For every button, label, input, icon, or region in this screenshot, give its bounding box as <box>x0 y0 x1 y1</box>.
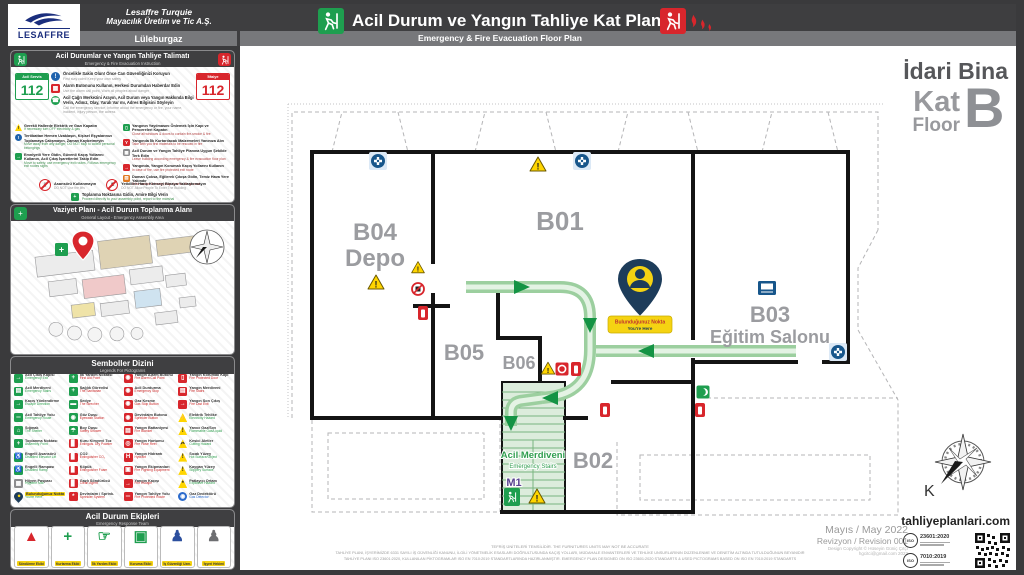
stairs-code: M1 <box>506 477 521 489</box>
warning-icon: ! <box>368 275 384 290</box>
lock-warning-icon: ! <box>412 262 425 274</box>
legend-icon: ▬ <box>69 400 78 409</box>
team-member-tile: ▲ Söndürme Ekibi <box>14 526 49 568</box>
stairs-exit-runner-icon <box>504 488 520 506</box>
note-text: Yangında İlk Kurtarılacak Malzemeleri Ya… <box>132 139 224 147</box>
legend-item: ▤ Acil Merdiveni Emergency Stairs <box>14 386 67 399</box>
legend-text: Sıcak Yüzey Hot Surface/Object <box>189 452 217 459</box>
team-member-icon: ♟ <box>207 528 220 546</box>
svg-text:+: + <box>59 245 64 255</box>
legend-text: Yangın Tahliye Yolu Fire Protected Route <box>135 492 170 499</box>
plan-subtitle: Emergency & Fire Evacuation Floor Plan <box>300 33 700 43</box>
instruction-note: → Yangında, Yangın Korumalı Kaçış Yollar… <box>123 164 230 172</box>
note-icon: ▦ <box>123 149 130 156</box>
legend-text: Yanıcı Gaz/Sıvı Flammable Gas/Liquid <box>189 426 222 433</box>
team-member-label: İşyeri Hekimi <box>202 561 225 566</box>
legend-icon: * <box>178 479 187 488</box>
svg-text:!: ! <box>537 162 540 172</box>
site-map: + <box>11 221 232 349</box>
room-label-b02: B02 <box>573 448 613 473</box>
team-member-tile: ☞ İlk Yardım Ekibi <box>87 526 122 568</box>
legend-icon: → <box>178 400 187 409</box>
iso-number-block: 23601:2020 <box>920 535 950 546</box>
legend-text: Yangın Kaçışı Fire Escape <box>135 479 160 486</box>
legend-icon: ▊ <box>69 439 78 448</box>
exit-runner-icon <box>318 8 344 34</box>
legend-item: ▯ Yangın Korumalı Kapı Fire Protected Do… <box>178 373 231 386</box>
legend-item: ◉ Acil Durdurma Emergency Stop <box>124 386 177 399</box>
legend-title: Semboller Dizini <box>11 359 234 368</box>
svg-text:!: ! <box>547 366 550 375</box>
legend-item: ! Yanıcı Gaz/Sıvı Flammable Gas/Liquid <box>178 426 231 439</box>
legend-text: Yangın Battaniyesi Fire Blanket <box>135 426 169 433</box>
fire-hose-icon <box>556 363 569 376</box>
team-member-tile: ♟ İşyeri Hekimi <box>197 526 232 568</box>
legend-text: Kaçış Yönlendirme Escape Direction <box>25 399 59 406</box>
compass-rose: K <box>924 434 991 500</box>
legend-item: ▤ Yangın Merdiveni Fire Stairs <box>178 386 231 399</box>
legend-item: → Kaçış Yönlendirme Escape Direction <box>14 399 67 412</box>
legend-text: Yangın Korumalı Kapı Fire Protected Door <box>189 373 228 380</box>
plan-email: hgcitci@gmail.com 2022 <box>700 551 908 556</box>
prohibitions: ▯ Asansörü KullanmayınDO NOT Use the lif… <box>15 179 230 191</box>
legend-text: Sağlık Görevlisi The Sanitarian <box>80 386 109 393</box>
legend-text: Yangın Alarm Butonu Fire Alarm Call Poin… <box>135 373 173 380</box>
iso-number: 23601:2020 <box>920 535 950 541</box>
stairs-label-en: Emergency Stairs <box>509 464 556 470</box>
iso-logo: ISO <box>903 533 918 548</box>
team-member-label: Kurtarma Ekibi <box>55 561 81 566</box>
note-icon: ! <box>15 124 22 131</box>
prohibited-icon: ♟ <box>106 179 118 191</box>
prohibited-icon: ▯ <box>39 179 51 191</box>
flame-icon <box>689 8 712 34</box>
fan-icon <box>829 343 847 361</box>
legend-text: Toplanma Noktası Assembly Point <box>25 439 57 446</box>
legend-icon: ▯ <box>178 374 187 383</box>
room-label-b05: B05 <box>444 340 484 365</box>
legend-text: Hijyen Paspası Hygiene Mat <box>25 479 52 486</box>
site-layout-title: Vaziyet Planı - Acil Durum Toplanma Alan… <box>11 207 234 215</box>
instruction-note: ! Tertibattan Hemen Uzaklaşın, Kişisel E… <box>15 134 119 150</box>
assembly-text: Toplanma Noktasına Gidin, Amire Bilgi Ve… <box>82 192 174 201</box>
step-text: Öncelikle Sakin Olun! Önce Can Güvenliği… <box>63 72 170 81</box>
legend-item: + Toplanma Noktası Assembly Point <box>14 439 67 452</box>
legend-text: Kuru Kimyevi Toz Extinguis. Dry Powder <box>80 439 112 446</box>
legend-icon: ◉ <box>69 413 78 422</box>
emergency-number-fire: İtfaiye 112 <box>196 73 230 100</box>
legend-icon: ◉ <box>124 387 133 396</box>
legend-text: CO2 Extinguisher CO₂ <box>80 452 105 459</box>
stairs-label-tr: Acil Merdiveni <box>501 450 565 461</box>
legend-text: Yangın Ekipmanları Fire Fighting Equipme… <box>135 465 170 472</box>
legend-icon: ▣ <box>124 466 133 475</box>
team-member-label: İlk Yardım Ekibi <box>91 561 118 566</box>
legend-item: ▊ Köpük Extinguisher Foam <box>69 465 122 478</box>
assembly-point-icon: + <box>14 207 27 220</box>
note-text: Emniyetli Yere Gidin, Güvenli Kaçış Yoll… <box>24 153 119 169</box>
legend-icon: ◉ <box>124 413 133 422</box>
legend-text: Acil Durdurma Emergency Stop <box>135 386 161 393</box>
step-icon: ☎ <box>51 96 60 105</box>
legend-text: Engelli Rampası Disabled Ramp <box>25 465 54 472</box>
legend-icon: ! <box>178 466 187 475</box>
legend-text: Yangın Son Çıkış Fire Last Exit <box>189 399 220 406</box>
legend-item: ═ Yangın Tahliye Yolu Fire Protected Rou… <box>124 492 177 505</box>
room-label-b04-name: Depo <box>345 245 405 272</box>
no-entry-icon <box>412 283 424 295</box>
team-member-tile: ▣ Koruma Ekibi <box>124 526 159 568</box>
plan-revision: Revizyon / Revision 001 <box>700 536 908 546</box>
you-are-here-en: You're Here <box>628 326 653 331</box>
legend-text: Bulunduğunuz Nokta You're Here <box>25 492 65 499</box>
legend-item: ◉ Devirdaim Butonu Sprinkler Button <box>124 413 177 426</box>
company-name: Lesaffre Turquie Mayacılık Üretim ve Tic… <box>82 7 236 26</box>
instructions-header: Acil Durumlar ve Yangın Tahliye Talimatı… <box>11 51 234 67</box>
prohibition-item: ♟ Yetkililer Hariç Kimseyi Binaya Yaklaş… <box>106 179 206 191</box>
team-title: Acil Durum Ekipleri <box>11 512 234 521</box>
you-are-here-tr: Bulunduğunuz Nokta <box>615 320 665 326</box>
legend-text: Elektrik Tehlike Electricity Hazard <box>189 413 217 420</box>
legend-icon: ! <box>178 453 187 462</box>
evacuation-plan-poster: { "header": { "logo_text": "LESAFFRE", "… <box>0 0 1024 575</box>
website: tahliyeplanlari.com <box>878 514 1010 528</box>
legend-item: ♿ Engelli Rampası Disabled Ramp <box>14 465 67 478</box>
site-layout-subtitle: General Layout - Emergency Assembly Area <box>11 215 234 220</box>
assembly-point-marker: + <box>55 243 68 256</box>
instruction-note: ▦ Acil Durum ve Yangın Tahliye Planına U… <box>123 149 230 161</box>
legend-icon: + <box>14 439 23 448</box>
note-icon: ▯ <box>123 124 130 131</box>
legend-text: Kesici Aletler Cutting Hazard <box>189 439 213 446</box>
note-text: Gerekli Hallerde Elektrik ve Gazı Kapatı… <box>24 124 97 132</box>
company-line2: Mayacılık Üretim ve Tic A.Ş. <box>82 17 236 26</box>
legend-icon: ✂ <box>178 439 187 448</box>
room-label-b01: B01 <box>536 206 584 236</box>
legend-text: Engelli Asansörü Disabled Elevator Lift <box>25 452 56 459</box>
legend-text: Sığınak The Shelter <box>25 426 42 433</box>
iso-number-block: 7010:2019 <box>920 555 950 566</box>
fire-extinguisher-icon <box>600 403 610 417</box>
legend-text: İlk Yardım Noktası First Aid Point <box>80 373 113 380</box>
legend-item: ✂ Kesici Aletler Cutting Hazard <box>178 439 231 452</box>
legend-item: H Yangın Hidrantı Hydrant <box>124 452 177 465</box>
legend-icon: ◉ <box>178 492 187 501</box>
legend-text: Patlayıcı Ortam Explosive Hazard <box>189 479 217 486</box>
note-icon: Y <box>123 139 130 146</box>
legend-header: Semboller Dizini Legends For Pictograms <box>11 357 234 374</box>
fire-extinguisher-icon <box>418 306 428 320</box>
team-member-icon: ♟ <box>171 528 184 546</box>
legend-item: ⌂ Sığınak The Shelter <box>14 426 67 439</box>
assembly-point-icon: + <box>71 193 79 201</box>
iso-badge-23601: ISO 23601:2020 <box>903 533 950 548</box>
legend-icon: → <box>14 374 23 383</box>
svg-text:!: ! <box>536 494 539 504</box>
legend-icon: ☂ <box>69 426 78 435</box>
step-text: Acil Çağrı Merkezini Arayın, Acil Durum … <box>63 96 194 114</box>
legend-item: ◉ Yangın Alarm Butonu Fire Alarm Call Po… <box>124 373 177 386</box>
instructions-title: Acil Durumlar ve Yangın Tahliye Talimatı <box>11 53 234 61</box>
lesaffre-bird-icon <box>22 11 66 27</box>
projector-screen-icon <box>758 281 776 295</box>
legend-item: ♿ Engelli Asansörü Disabled Elevator Lif… <box>14 452 67 465</box>
fire-exit-icon <box>660 8 686 34</box>
room-label-b06: B06 <box>502 353 535 373</box>
legend-item: * Devirdaim / Sprink. Sprinkler System <box>69 492 122 505</box>
team-header: Acil Durum Ekipleri Emergency Response T… <box>11 510 234 527</box>
legend-item: → Yangın Kaçışı Fire Escape <box>124 479 177 492</box>
legend-item: ☂ Boy Duşu Safety Shower <box>69 426 122 439</box>
legend-icon: ◉ <box>124 400 133 409</box>
step-icon: ▦ <box>51 84 60 93</box>
legend-item: ▦ Hijyen Paspası Hygiene Mat <box>14 479 67 492</box>
legend-item: ⚡ Elektrik Tehlike Electricity Hazard <box>178 413 231 426</box>
legend-text: Yangın Hidrantı Hydrant <box>135 452 163 459</box>
company-line1: Lesaffre Turquie <box>82 7 236 17</box>
note-icon: → <box>123 164 130 171</box>
warning-icon: ! <box>541 362 555 375</box>
team-member-label: Koruma Ekibi <box>129 561 153 566</box>
instruction-step: ! Öncelikle Sakin Olun! Önce Can Güvenli… <box>51 72 194 81</box>
fire-extinguisher-icon <box>695 403 705 417</box>
instruction-steps: ! Öncelikle Sakin Olun! Önce Can Güvenli… <box>51 72 194 117</box>
team-member-icon: + <box>63 528 72 546</box>
instruction-note: ▯ Yangının Yayılmasını Önlemek İçin Kapı… <box>123 124 230 136</box>
location-bar: Lüleburgaz <box>80 31 237 46</box>
legend-text: Yangın Merdiveni Fire Stairs <box>189 386 220 393</box>
iso-number: 7010:2019 <box>920 555 950 561</box>
legend-item: * Patlayıcı Ortam Explosive Hazard <box>178 479 231 492</box>
legend-icon: H <box>124 453 133 462</box>
revision-block: Mayıs / May 2022 Revizyon / Revision 001… <box>700 524 908 556</box>
iso-badge-7010: ISO 7010:2019 <box>903 553 950 568</box>
legend-item: + Sağlık Görevlisi The Sanitarian <box>69 386 122 399</box>
legend-icon: ♿ <box>14 466 23 475</box>
legend-icon: ═ <box>14 413 23 422</box>
legend-icon: ▊ <box>69 453 78 462</box>
legend-grid: → Acil Çıkış Kapısı Emergency Exit + İlk… <box>14 373 231 505</box>
fire-extinguisher-icon <box>571 362 581 376</box>
legend-icon: ▊ <box>69 466 78 475</box>
fan-icon <box>573 152 591 170</box>
team-row: ▲ Söndürme Ekibi + Kurtarma Ekibi ☞ İlk … <box>14 526 231 568</box>
legend-text: Acil Çıkış Kapısı Emergency Exit <box>25 373 55 380</box>
legend-text: Gaz Kesme Gas Stop Button <box>135 399 159 406</box>
team-member-label: Söndürme Ekibi <box>17 561 45 566</box>
team-member-label: İş Güvenliği Uzm. <box>162 561 192 566</box>
team-member-icon: ▲ <box>24 528 39 546</box>
legend-icon: ! <box>178 426 187 435</box>
legend-item: ! Kaygan Yüzey Slippery Surface <box>178 465 231 478</box>
legend-item: ═ Acil Tahliye Yolu Emergency Route <box>14 413 67 426</box>
compass-north-label: K <box>924 483 935 500</box>
legend-text: Sedye The Strecher <box>80 399 99 406</box>
instruction-note: ! Gerekli Hallerde Elektrik ve Gazı Kapa… <box>15 124 119 132</box>
legend-item: → Acil Çıkış Kapısı Emergency Exit <box>14 373 67 386</box>
legend-item: + İlk Yardım Noktası First Aid Point <box>69 373 122 386</box>
prohibition-text: Yetkililer Hariç Kimseyi Binaya Yaklaştı… <box>121 181 206 190</box>
floor-plan: B04 Depo B01 B03 Eğitim Salonu B05 B06 B… <box>240 50 1016 570</box>
team-member-icon: ☞ <box>98 528 111 546</box>
logo-text: LESAFFRE <box>18 28 70 40</box>
prohibition-item: ▯ Asansörü KullanmayınDO NOT Use the lif… <box>39 179 96 191</box>
instruction-note: Y Yangında İlk Kurtarılacak Malzemeleri … <box>123 139 230 147</box>
legend-item: ● Bulunduğunuz Nokta You're Here <box>14 492 67 505</box>
note-text: Yangının Yayılmasını Önlemek İçin Kapı v… <box>132 124 230 136</box>
legend-icon: ◎ <box>124 439 133 448</box>
room-label-b04: B04 <box>353 219 398 246</box>
site-compass-icon <box>190 230 224 264</box>
iso-microtext <box>920 562 950 566</box>
emergency-number-ambulance: Acil Servis 112 <box>15 73 49 100</box>
legend-icon: ▤ <box>124 426 133 435</box>
note-icon: ! <box>15 134 22 141</box>
legend-text: Gazl​ı Söndürücü Clean Agent <box>80 479 110 486</box>
instruction-step: ▦ Alarm Butonunu Kullanın, Herkesi Durum… <box>51 84 194 93</box>
legend-icon: ▦ <box>14 479 23 488</box>
legend-item: ▊ Gazl​ı Söndürücü Clean Agent <box>69 479 122 492</box>
legend-text: Köpük Extinguisher Foam <box>80 465 108 472</box>
legend-icon: + <box>69 387 78 396</box>
legend-icon: ⚡ <box>178 413 187 422</box>
legend-text: Yangın Hortumu Fire Hose Reel <box>135 439 164 446</box>
legend-text: Göz Duşu Eyewash Station <box>80 413 105 420</box>
note-icon: → <box>15 153 22 160</box>
legend-item: → Yangın Son Çıkış Fire Last Exit <box>178 399 231 412</box>
note-text: Yangında, Yangın Korumalı Kaçış Yolların… <box>132 164 224 172</box>
notes-left: ! Gerekli Hallerde Elektrik ve Gazı Kapa… <box>15 124 119 171</box>
legend-icon: + <box>69 374 78 383</box>
instruction-note: → Emniyetli Yere Gidin, Güvenli Kaçış Yo… <box>15 153 119 169</box>
legend-item: ▊ CO2 Extinguisher CO₂ <box>69 452 122 465</box>
note-text: Acil Durum ve Yangın Tahliye Planına Uyg… <box>132 149 230 161</box>
plan-date: Mayıs / May 2022 <box>700 524 908 536</box>
warning-icon: ! <box>530 157 546 172</box>
iso-microtext <box>920 542 950 546</box>
exit-runner-icon <box>14 53 27 66</box>
qr-code <box>974 532 1011 569</box>
plan-title: Acil Durum ve Yangın Tahliye Kat Planı <box>352 11 666 31</box>
legend-icon: ● <box>14 492 25 503</box>
legend-icon: ▊ <box>69 479 78 488</box>
svg-text:!: ! <box>417 265 419 274</box>
legend-icon: → <box>14 400 23 409</box>
legend-icon: * <box>69 492 78 501</box>
lesaffre-logo: LESAFFRE <box>8 4 80 46</box>
prohibition-text: Asansörü KullanmayınDO NOT Use the lifts <box>54 181 96 190</box>
legend-item: ◎ Yangın Hortumu Fire Hose Reel <box>124 439 177 452</box>
fan-icon <box>369 152 387 170</box>
legend-text: Acil Merdiveni Emergency Stairs <box>25 386 51 393</box>
instructions-panel: Acil Durumlar ve Yangın Tahliye Talimatı… <box>10 50 235 203</box>
legend-icon: → <box>124 479 133 488</box>
legend-panel: Semboller Dizini Legends For Pictograms … <box>10 356 235 508</box>
svg-text:!: ! <box>375 280 378 290</box>
legend-icon: ◉ <box>124 374 133 383</box>
exit-sign-icon <box>697 386 710 399</box>
legend-item: ▣ Yangın Ekipmanları Fire Fighting Equip… <box>124 465 177 478</box>
disclaimer-line3: TAHLİYE PLANI ISO 23601:2020, KULLANILAN… <box>260 557 880 561</box>
legend-icon: ▤ <box>14 387 23 396</box>
legend-item: ▬ Sedye The Strecher <box>69 399 122 412</box>
step-text: Alarm Butonunu Kullanın, Herkesi Durumda… <box>63 84 180 93</box>
you-are-here-pin: Bulunduğunuz Nokta You're Here <box>608 258 672 333</box>
legend-item: ▊ Kuru Kimyevi Toz Extinguis. Dry Powder <box>69 439 122 452</box>
team-panel: Acil Durum Ekipleri Emergency Response T… <box>10 509 235 570</box>
legend-item: ◉ Gaz Kesme Gas Stop Button <box>124 399 177 412</box>
team-member-tile: + Kurtarma Ekibi <box>51 526 86 568</box>
team-member-tile: ♟ İş Güvenliği Uzm. <box>160 526 195 568</box>
legend-text: Gaz Dedektörü Gas Detector <box>189 492 216 499</box>
legend-text: Devirdaim / Sprink. Sprinkler System <box>80 492 114 499</box>
legend-item: ◉ Göz Duşu Eyewash Station <box>69 413 122 426</box>
fire-exit-icon <box>218 53 231 66</box>
legend-item: ◉ Gaz Dedektörü Gas Detector <box>178 492 231 505</box>
instructions-subtitle: Emergency & Fire Evacuation Instruction <box>11 61 234 66</box>
legend-item: ! Sıcak Yüzey Hot Surface/Object <box>178 452 231 465</box>
legend-icon: ▤ <box>178 387 187 396</box>
legend-item: ▤ Yangın Battaniyesi Fire Blanket <box>124 426 177 439</box>
room-label-b03-name: Eğitim Salonu <box>710 327 830 347</box>
site-layout-panel: + Vaziyet Planı - Acil Durum Toplanma Al… <box>10 204 235 355</box>
legend-text: Kaygan Yüzey Slippery Surface <box>189 465 215 472</box>
legend-icon: ⌂ <box>14 426 23 435</box>
room-label-b03: B03 <box>750 302 790 327</box>
note-text: Tertibattan Hemen Uzaklaşın, Kişisel Eşy… <box>24 134 119 150</box>
assembly-instruction: + Toplanma Noktasına Gidin, Amire Bilgi … <box>15 192 230 201</box>
legend-text: Boy Duşu Safety Shower <box>80 426 101 433</box>
legend-text: Acil Tahliye Yolu Emergency Route <box>25 413 55 420</box>
instruction-step: ☎ Acil Çağrı Merkezini Arayın, Acil Duru… <box>51 96 194 114</box>
step-icon: ! <box>51 72 60 81</box>
iso-logo: ISO <box>903 553 918 568</box>
legend-icon: ═ <box>124 492 133 501</box>
legend-icon: ♿ <box>14 453 23 462</box>
site-layout-header: + Vaziyet Planı - Acil Durum Toplanma Al… <box>11 205 234 221</box>
legend-text: Devirdaim Butonu Sprinkler Button <box>135 413 168 420</box>
team-member-icon: ▣ <box>134 528 148 546</box>
